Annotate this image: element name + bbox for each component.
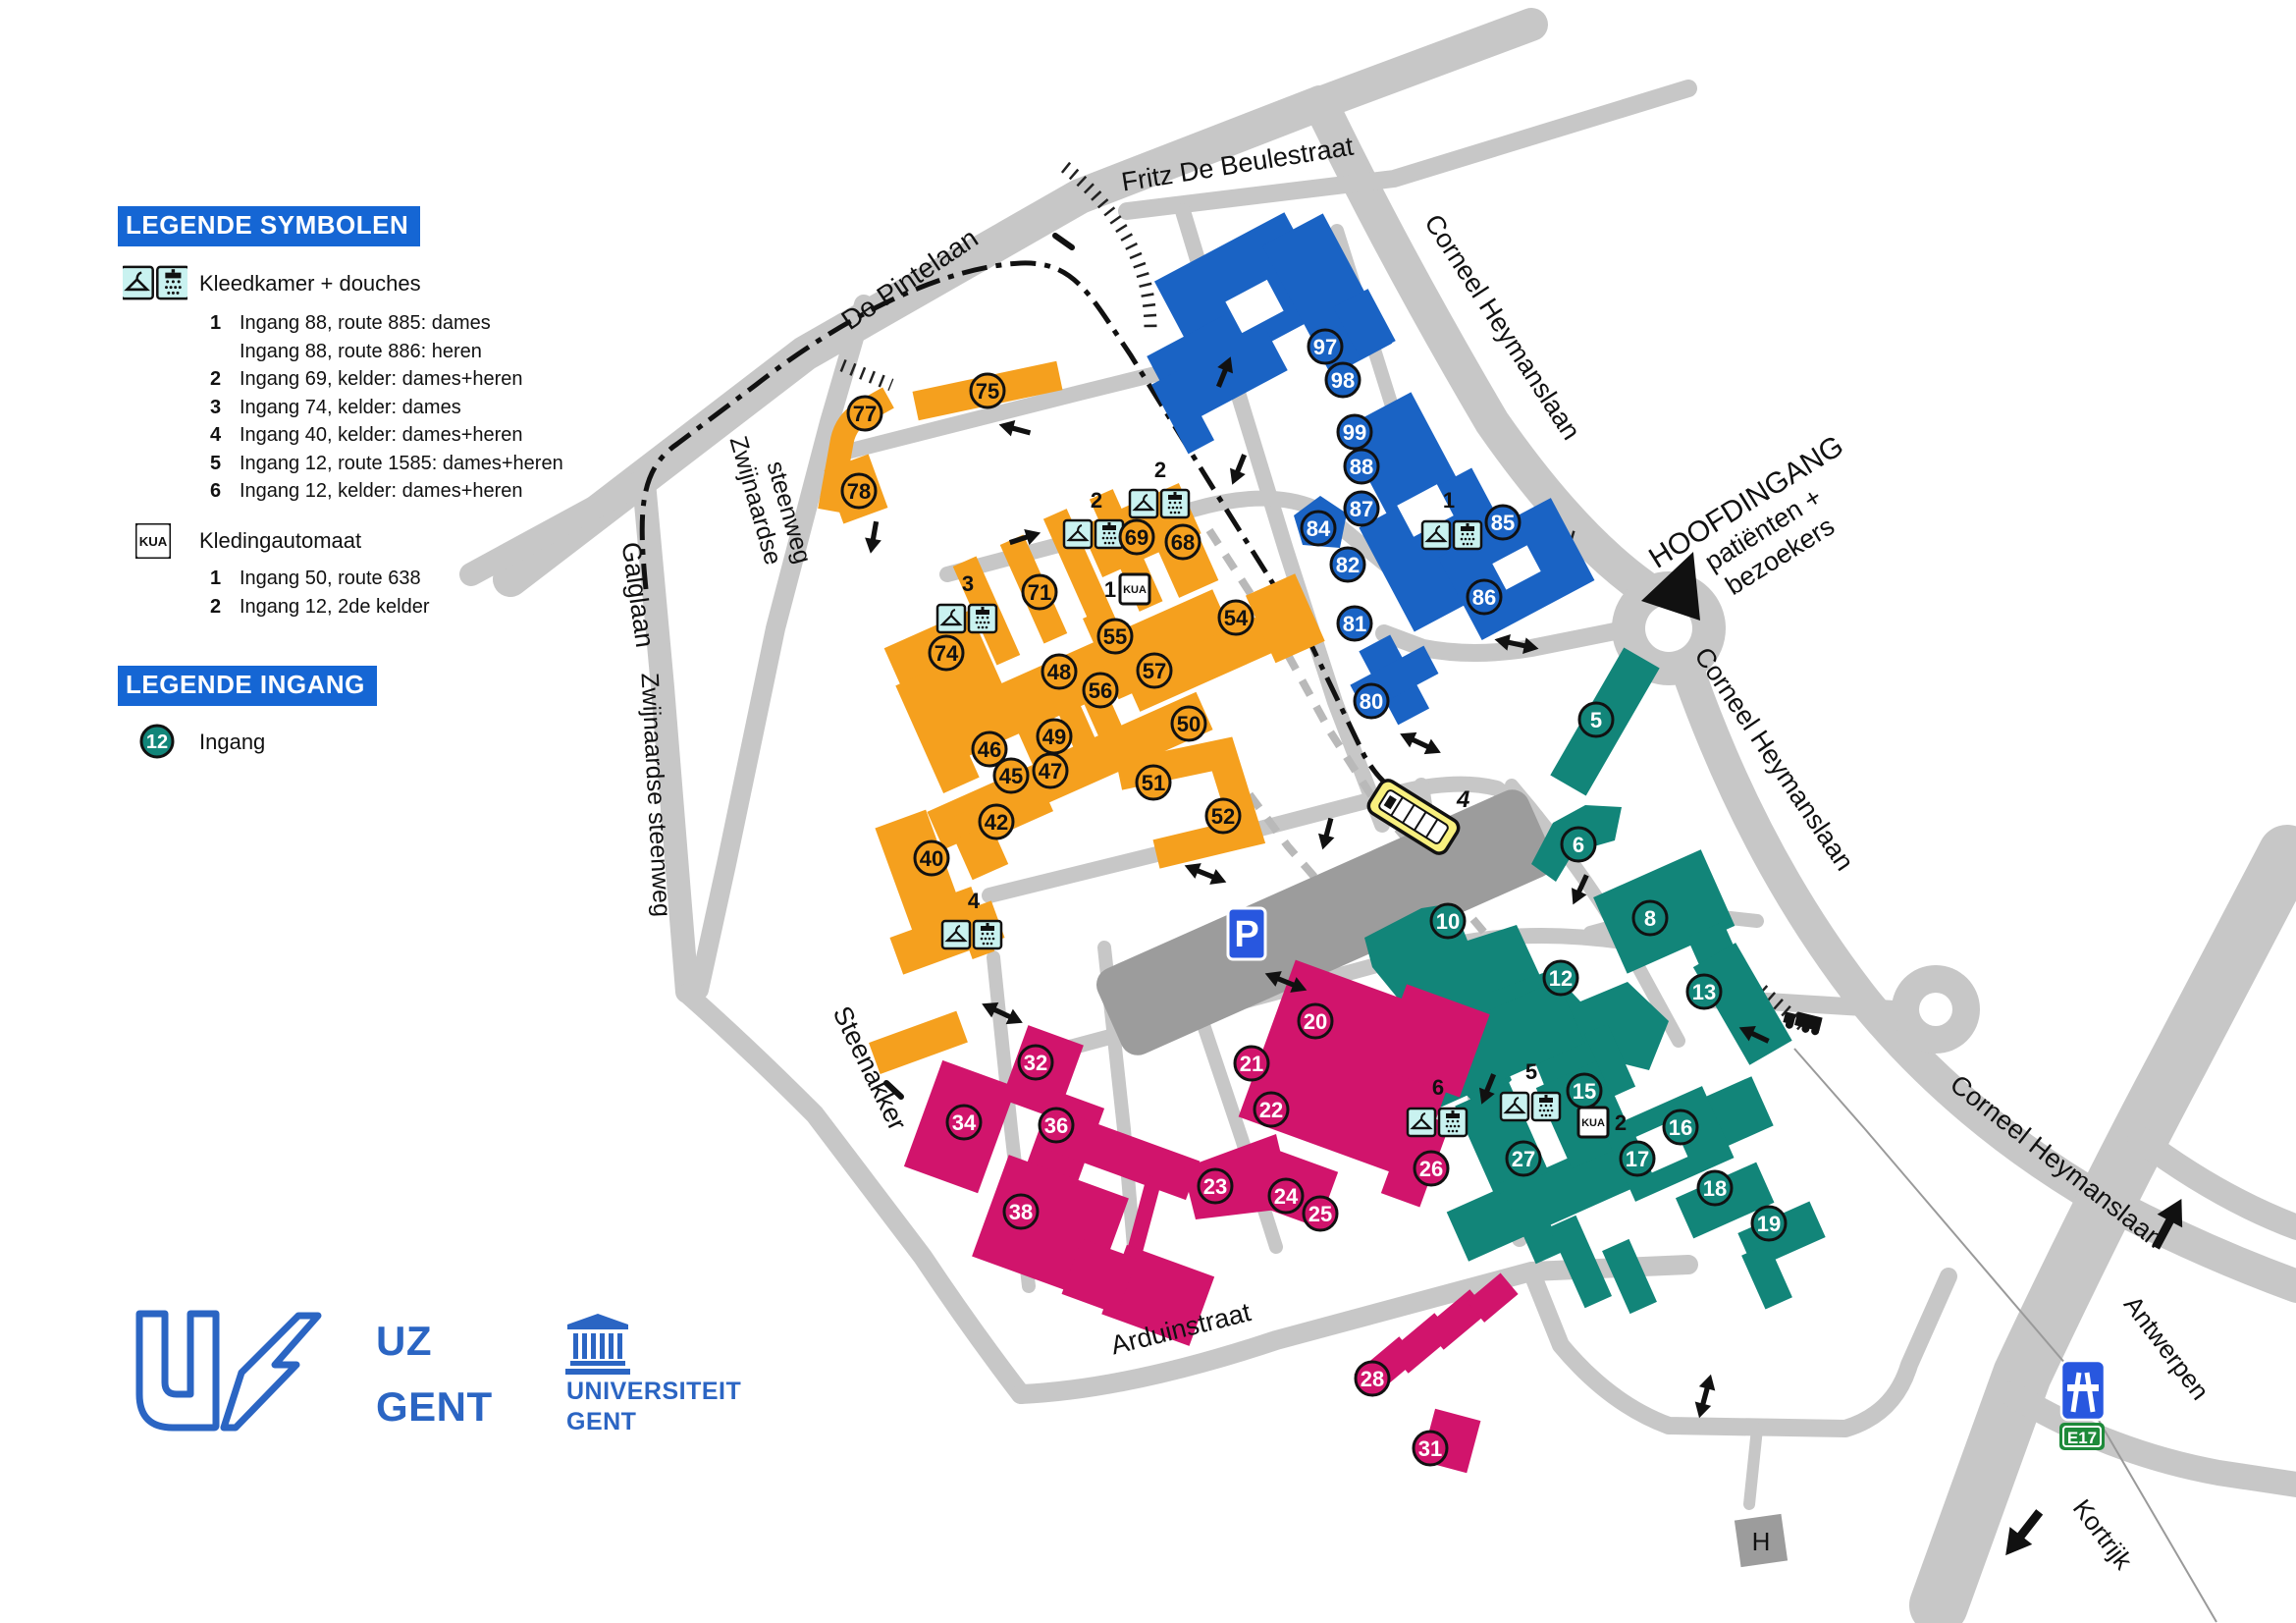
icon-number-label: 4 [968,889,981,913]
svg-text:31: 31 [1418,1436,1442,1461]
svg-text:50: 50 [1177,712,1201,736]
svg-text:97: 97 [1313,335,1337,359]
uz-gent-logo [126,1306,371,1448]
ingang-badge-77: 77 [848,397,881,430]
ingang-badge-25: 25 [1304,1197,1337,1230]
ingang-badge-45: 45 [994,759,1028,792]
svg-text:24: 24 [1274,1184,1299,1209]
svg-text:56: 56 [1089,678,1112,703]
svg-text:52: 52 [1211,804,1235,829]
icon-number-label: 6 [1432,1075,1444,1100]
legend-item-text: Ingang 12, kelder: dames+heren [240,480,523,502]
road-slip-2 [2012,1394,2296,1485]
ingang-badge-97: 97 [1308,330,1342,363]
svg-text:82: 82 [1336,553,1360,577]
street-label: Kortrijk [2067,1493,2139,1575]
svg-text:E17: E17 [2067,1429,2097,1447]
svg-text:16: 16 [1669,1115,1692,1140]
ingang-badge-57: 57 [1138,654,1171,687]
icon-number-label: 2 [1154,458,1166,482]
legend-item: 2Ingang 69, kelder: dames+heren [210,368,523,391]
legend-item-number: 2 [210,368,240,391]
legend-item-number: 2 [210,596,240,619]
ingang-badge-27: 27 [1507,1142,1540,1175]
ingang-badge-31: 31 [1414,1432,1447,1465]
ugent-logomark [565,1312,634,1375]
legend-item-text: Ingang 69, kelder: dames+heren [240,368,523,390]
legend-item-text: Ingang 88, route 886: heren [240,341,482,362]
svg-text:46: 46 [978,737,1001,762]
svg-text:KUA: KUA [1123,584,1147,596]
svg-text:5: 5 [1590,708,1602,732]
ingang-badge-54: 54 [1219,601,1253,634]
legend-item: 1Ingang 50, route 638 [210,568,421,590]
svg-text:51: 51 [1142,771,1165,795]
ingang-badge-82: 82 [1331,548,1364,581]
svg-text:25: 25 [1308,1202,1332,1226]
ingang-badge-71: 71 [1023,575,1056,609]
ingang-badge-52: 52 [1206,799,1240,833]
ingang-label: Ingang [199,730,265,755]
ingang-badge-32: 32 [1019,1046,1052,1079]
ingang-badge-12: 12 [1544,961,1577,995]
ingang-badge-55: 55 [1098,620,1132,653]
svg-text:27: 27 [1512,1147,1535,1171]
street-label: Steenakker [828,1001,913,1135]
icon-number-label: 1 [1443,488,1455,513]
ingang-badge-36: 36 [1040,1109,1073,1142]
ingang-badge-13: 13 [1687,975,1721,1008]
svg-text:20: 20 [1304,1009,1327,1034]
svg-text:13: 13 [1692,980,1716,1004]
kleedkamer-douches-icon [1501,1093,1560,1120]
icon-number-label: 1 [1104,577,1116,602]
legend-item-number: 5 [210,453,240,475]
ingang-badge-22: 22 [1255,1093,1288,1126]
ingang-badge-56: 56 [1084,674,1117,707]
ingang-badge-38: 38 [1004,1195,1038,1228]
legend-item: 6Ingang 12, kelder: dames+heren [210,480,523,503]
ingang-badge-20: 20 [1299,1004,1332,1038]
legend-item-text: Ingang 12, route 1585: dames+heren [240,453,563,474]
ugent-logo [565,1312,634,1380]
svg-text:10: 10 [1436,909,1460,934]
legend-symbolen: LEGENDE SYMBOLEN [118,206,420,246]
uz-logo-word2: GENT [376,1388,493,1427]
ingang-badge-21: 21 [1235,1047,1268,1080]
ingang-badge-78: 78 [842,474,876,508]
svg-text:57: 57 [1143,659,1166,683]
svg-text:81: 81 [1343,612,1366,636]
svg-text:80: 80 [1360,689,1383,714]
svg-text:18: 18 [1703,1176,1727,1201]
kua-icon: KUA [135,523,171,564]
svg-text:KUA: KUA [1581,1117,1605,1129]
ingang-badge-69: 69 [1120,520,1153,554]
svg-text:36: 36 [1044,1113,1068,1138]
svg-text:8: 8 [1644,906,1656,931]
kledingautomaat-label: Kledingautomaat [199,528,361,554]
ingang-badge-87: 87 [1345,492,1378,525]
svg-text:45: 45 [999,764,1023,788]
svg-text:98: 98 [1331,368,1355,393]
ingang-badge-84: 84 [1302,512,1335,545]
ingang-badge-sample: 12 [137,722,177,766]
icon-number-label: 2 [1615,1110,1627,1135]
helipad-label: H [1752,1527,1771,1556]
svg-text:85: 85 [1491,511,1515,535]
ingang-badge-34: 34 [947,1106,981,1139]
ingang-badge-98: 98 [1326,363,1360,397]
ingang-badge-49: 49 [1038,720,1071,753]
svg-text:21: 21 [1240,1052,1263,1076]
legend-ingang-title: LEGENDE INGANG [118,666,377,706]
ingang-badge-51: 51 [1137,766,1170,799]
svg-text:99: 99 [1343,420,1366,445]
kleedkamer-label: Kleedkamer + douches [199,271,421,297]
uz-logo-word: UZ [376,1323,432,1361]
ugent-logo-word: UNIVERSITEIT [566,1380,741,1403]
svg-text:15: 15 [1573,1079,1596,1104]
ingang-badge-5: 5 [1579,703,1613,736]
uz-gent-logomark [126,1306,371,1443]
ingang-badge-48: 48 [1042,655,1076,688]
legend-item-text: Ingang 88, route 885: dames [240,312,491,334]
ingang-badge-81: 81 [1338,607,1371,640]
svg-text:71: 71 [1028,580,1051,605]
ingang-badge-26: 26 [1415,1152,1448,1185]
legend-item: 5Ingang 12, route 1585: dames+heren [210,453,563,475]
kleedkamer-icon [123,265,187,305]
svg-text:78: 78 [847,479,871,504]
ingang-badge-15: 15 [1568,1074,1601,1108]
legend-item-number: 3 [210,397,240,419]
ingang-badge-50: 50 [1172,707,1205,740]
road-helipad-spur [1749,1429,1757,1504]
svg-text:86: 86 [1472,585,1496,610]
ingang-badge-8: 8 [1633,901,1667,935]
road-de-pintelaan-ne [1320,25,1531,103]
kledingautomaat-icon: KUA [1120,574,1149,604]
ingang-badge-74: 74 [930,636,963,670]
svg-text:42: 42 [985,810,1008,835]
svg-text:KUA: KUA [139,534,168,549]
svg-text:28: 28 [1361,1367,1384,1391]
ingang-badge-sample: 12 [141,726,173,757]
svg-text:6: 6 [1573,833,1584,857]
uz-gent-campus-map-page: { "colors":{ "building_blue":"#1A63C4","… [0,0,2296,1623]
ingang-badge-6: 6 [1562,828,1595,861]
legend-item: 4Ingang 40, kelder: dames+heren [210,424,523,447]
street-label: Antwerpen [2118,1290,2216,1405]
svg-text:40: 40 [920,846,943,871]
legend-item: Ingang 88, route 886: heren [210,341,482,363]
ingang-badge-68: 68 [1166,525,1200,559]
svg-text:17: 17 [1626,1147,1649,1171]
svg-text:84: 84 [1307,516,1331,541]
road-e17-highway [1939,854,2287,1605]
svg-text:23: 23 [1203,1174,1227,1199]
svg-text:19: 19 [1757,1212,1781,1236]
icon-number-label: 3 [962,571,974,596]
ingang-badge-24: 24 [1269,1179,1303,1213]
icon-number-label: 2 [1091,488,1102,513]
bus-stop-number: 4 [1456,786,1469,813]
legend-item-text: Ingang 74, kelder: dames [240,397,461,418]
svg-text:75: 75 [976,379,999,404]
legend-item-number: 1 [210,568,240,590]
svg-text:54: 54 [1224,606,1249,630]
ingang-badge-23: 23 [1199,1169,1232,1203]
svg-text:77: 77 [853,402,877,426]
kleedkamer-douches-icon [123,267,187,298]
ingang-badge-86: 86 [1468,580,1501,614]
svg-text:48: 48 [1047,660,1071,684]
svg-text:12: 12 [1549,966,1573,991]
legend-item: 1Ingang 88, route 885: dames [210,312,491,335]
ingang-badge-47: 47 [1034,754,1067,787]
road-tick-1 [1055,236,1072,247]
ugent-logo-word2: GENT [566,1411,636,1434]
ingang-badge-28: 28 [1356,1362,1389,1395]
svg-text:74: 74 [934,641,959,666]
svg-text:38: 38 [1009,1200,1033,1224]
svg-text:69: 69 [1125,525,1148,550]
legend-item-text: Ingang 12, 2de kelder [240,596,430,618]
ingang-badge-40: 40 [915,841,948,875]
ingang-badge-88: 88 [1345,450,1378,483]
ingang-badge-42: 42 [980,805,1013,839]
kledingautomaat-icon: KUA [1578,1108,1608,1137]
legend-item-number: 6 [210,480,240,503]
svg-text:26: 26 [1419,1157,1443,1181]
legend-item-text: Ingang 50, route 638 [240,568,421,589]
ingang-badge-10: 10 [1431,904,1465,938]
legend-item: 2Ingang 12, 2de kelder [210,596,430,619]
svg-text:49: 49 [1042,725,1066,749]
kledingautomaat-icon: KUA [135,523,171,559]
svg-text:22: 22 [1259,1098,1283,1122]
legend-ingang: LEGENDE INGANG [118,666,377,706]
legend-item-number: 1 [210,312,240,335]
ingang-badge-85: 85 [1486,506,1520,539]
ingang-badge-19: 19 [1752,1207,1786,1240]
ingang-badge-16: 16 [1664,1110,1697,1144]
svg-text:55: 55 [1103,624,1127,649]
legend-item-text: Ingang 40, kelder: dames+heren [240,424,523,446]
ingang-badge-18: 18 [1698,1171,1732,1205]
svg-text:68: 68 [1171,530,1195,555]
ingang-badge-17: 17 [1621,1142,1654,1175]
legend-symbolen-title: LEGENDE SYMBOLEN [118,206,420,246]
svg-text:87: 87 [1350,497,1373,521]
svg-text:12: 12 [146,731,168,753]
legend-item-number: 4 [210,424,240,447]
svg-text:88: 88 [1350,455,1373,479]
svg-text:32: 32 [1024,1051,1047,1075]
svg-text:47: 47 [1039,759,1062,784]
ingang-badge-80: 80 [1355,684,1388,718]
ingang-badge-75: 75 [971,374,1004,407]
legend-item: 3Ingang 74, kelder: dames [210,397,461,419]
ingang-badge-99: 99 [1338,415,1371,449]
svg-text:P: P [1234,914,1258,955]
icon-number-label: 5 [1525,1059,1537,1084]
svg-text:34: 34 [952,1110,977,1135]
